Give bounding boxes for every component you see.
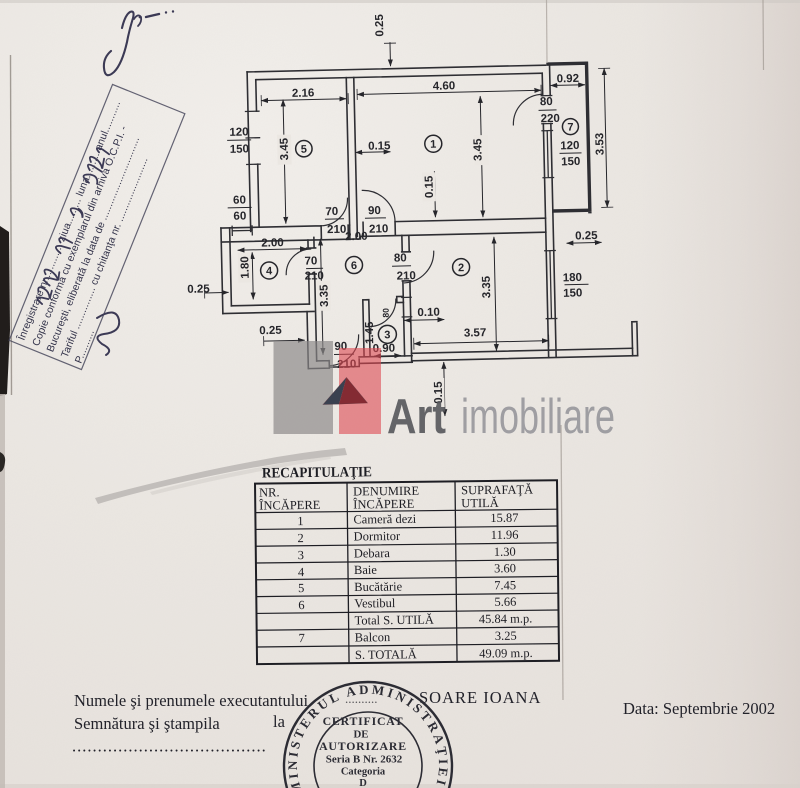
svg-text:150: 150	[230, 143, 249, 155]
svg-text:180: 180	[563, 272, 582, 284]
svg-text:220: 220	[541, 113, 560, 125]
svg-text:1.80: 1.80	[239, 256, 252, 279]
svg-text:80: 80	[394, 252, 407, 264]
svg-text:70: 70	[325, 206, 338, 218]
svg-text:1.45: 1.45	[364, 321, 377, 344]
svg-text:3.35: 3.35	[318, 284, 331, 307]
svg-text:4: 4	[298, 565, 305, 579]
svg-text:S. TOTALĂ: S. TOTALĂ	[355, 647, 417, 662]
svg-text:Dormitor: Dormitor	[354, 529, 402, 544]
svg-text:3.25: 3.25	[495, 629, 517, 643]
svg-text:60: 60	[233, 210, 246, 222]
svg-text:120: 120	[560, 140, 579, 152]
svg-text:3.45: 3.45	[472, 138, 485, 161]
svg-text:Categoria: Categoria	[341, 767, 386, 778]
svg-text:Baie: Baie	[354, 563, 378, 577]
svg-text:UTILĂ: UTILĂ	[461, 496, 499, 510]
svg-text:Balcon: Balcon	[355, 630, 391, 644]
svg-text:3.60: 3.60	[494, 561, 516, 575]
svg-text:Seria B Nr. 2632: Seria B Nr. 2632	[326, 754, 403, 766]
svg-text:Total S. UTILĂ: Total S. UTILĂ	[354, 613, 433, 628]
svg-text:Semnătura şi ştampila: Semnătura şi ştampila	[74, 714, 220, 733]
svg-text:80: 80	[381, 308, 391, 318]
svg-text:6: 6	[351, 260, 357, 272]
svg-text:210: 210	[327, 224, 346, 236]
svg-text:la: la	[273, 712, 286, 731]
svg-text:2.00: 2.00	[345, 231, 368, 244]
svg-text:D: D	[359, 778, 367, 788]
svg-text:6: 6	[298, 598, 304, 612]
svg-text:Cameră dezi: Cameră dezi	[353, 512, 416, 527]
svg-text:3: 3	[298, 548, 304, 562]
svg-text:7: 7	[567, 122, 573, 134]
svg-text:60: 60	[233, 194, 246, 206]
svg-text:7: 7	[299, 631, 305, 645]
svg-text:0.10: 0.10	[417, 307, 440, 320]
svg-text:5: 5	[301, 144, 307, 156]
svg-text:90: 90	[368, 205, 381, 217]
svg-text:Debara: Debara	[354, 546, 391, 560]
svg-text:ÎNCĂPERE: ÎNCĂPERE	[353, 497, 415, 512]
svg-text:Data: Septembrie 2002: Data: Septembrie 2002	[623, 699, 775, 718]
svg-text:Vestibul: Vestibul	[354, 596, 396, 610]
svg-text:150: 150	[563, 287, 582, 299]
svg-text:1: 1	[297, 514, 303, 528]
svg-text:5: 5	[298, 581, 304, 595]
svg-text:0.15: 0.15	[368, 140, 391, 153]
svg-text:imobiliare: imobiliare	[461, 390, 615, 444]
svg-text:3.53: 3.53	[594, 133, 607, 156]
svg-text:Numele şi prenumele executantu: Numele şi prenumele executantului	[74, 691, 309, 710]
svg-text:15.87: 15.87	[490, 511, 518, 525]
svg-text:CERTIFICAT: CERTIFICAT	[323, 714, 404, 728]
svg-text:0.25: 0.25	[575, 230, 598, 243]
svg-text:70: 70	[304, 255, 317, 267]
svg-text:4.60: 4.60	[433, 80, 456, 93]
svg-text:3.45: 3.45	[279, 137, 292, 160]
svg-text:SOARE IOANA: SOARE IOANA	[419, 688, 541, 707]
svg-text:0.25: 0.25	[187, 283, 210, 296]
svg-text:RECAPITULAŢIE: RECAPITULAŢIE	[262, 464, 372, 481]
svg-text:11.96: 11.96	[491, 528, 519, 542]
svg-text:80: 80	[540, 96, 553, 108]
svg-text:0.25: 0.25	[259, 325, 282, 338]
svg-text:Bucătărie: Bucătărie	[354, 579, 402, 594]
svg-text:49.09 m.p.: 49.09 m.p.	[479, 646, 533, 661]
svg-text:1: 1	[430, 139, 436, 151]
svg-text:0.15: 0.15	[423, 175, 436, 198]
svg-text:45.84 m.p.: 45.84 m.p.	[479, 612, 533, 627]
svg-text:210: 210	[369, 223, 388, 235]
svg-text:0.25: 0.25	[374, 13, 387, 36]
svg-text:5.66: 5.66	[494, 595, 516, 609]
svg-text:3: 3	[384, 329, 390, 341]
svg-text:3.35: 3.35	[481, 275, 494, 298]
svg-text:1.30: 1.30	[494, 545, 516, 559]
svg-text:ÎNCĂPERE: ÎNCĂPERE	[259, 498, 321, 513]
svg-text:210: 210	[397, 270, 416, 282]
svg-text:7.45: 7.45	[494, 578, 516, 592]
svg-text:120: 120	[229, 126, 248, 138]
svg-text:2: 2	[458, 262, 464, 274]
svg-text:2: 2	[297, 531, 303, 545]
svg-text:2.16: 2.16	[292, 87, 315, 100]
svg-text:2.00: 2.00	[261, 237, 284, 250]
svg-text:0.92: 0.92	[557, 73, 580, 86]
svg-text:3.57: 3.57	[464, 327, 487, 340]
svg-text:150: 150	[561, 156, 580, 168]
svg-text:..............................: ......................................	[72, 737, 267, 756]
svg-text:AUTORIZARE: AUTORIZARE	[319, 739, 407, 753]
svg-text:Art: Art	[387, 390, 446, 444]
